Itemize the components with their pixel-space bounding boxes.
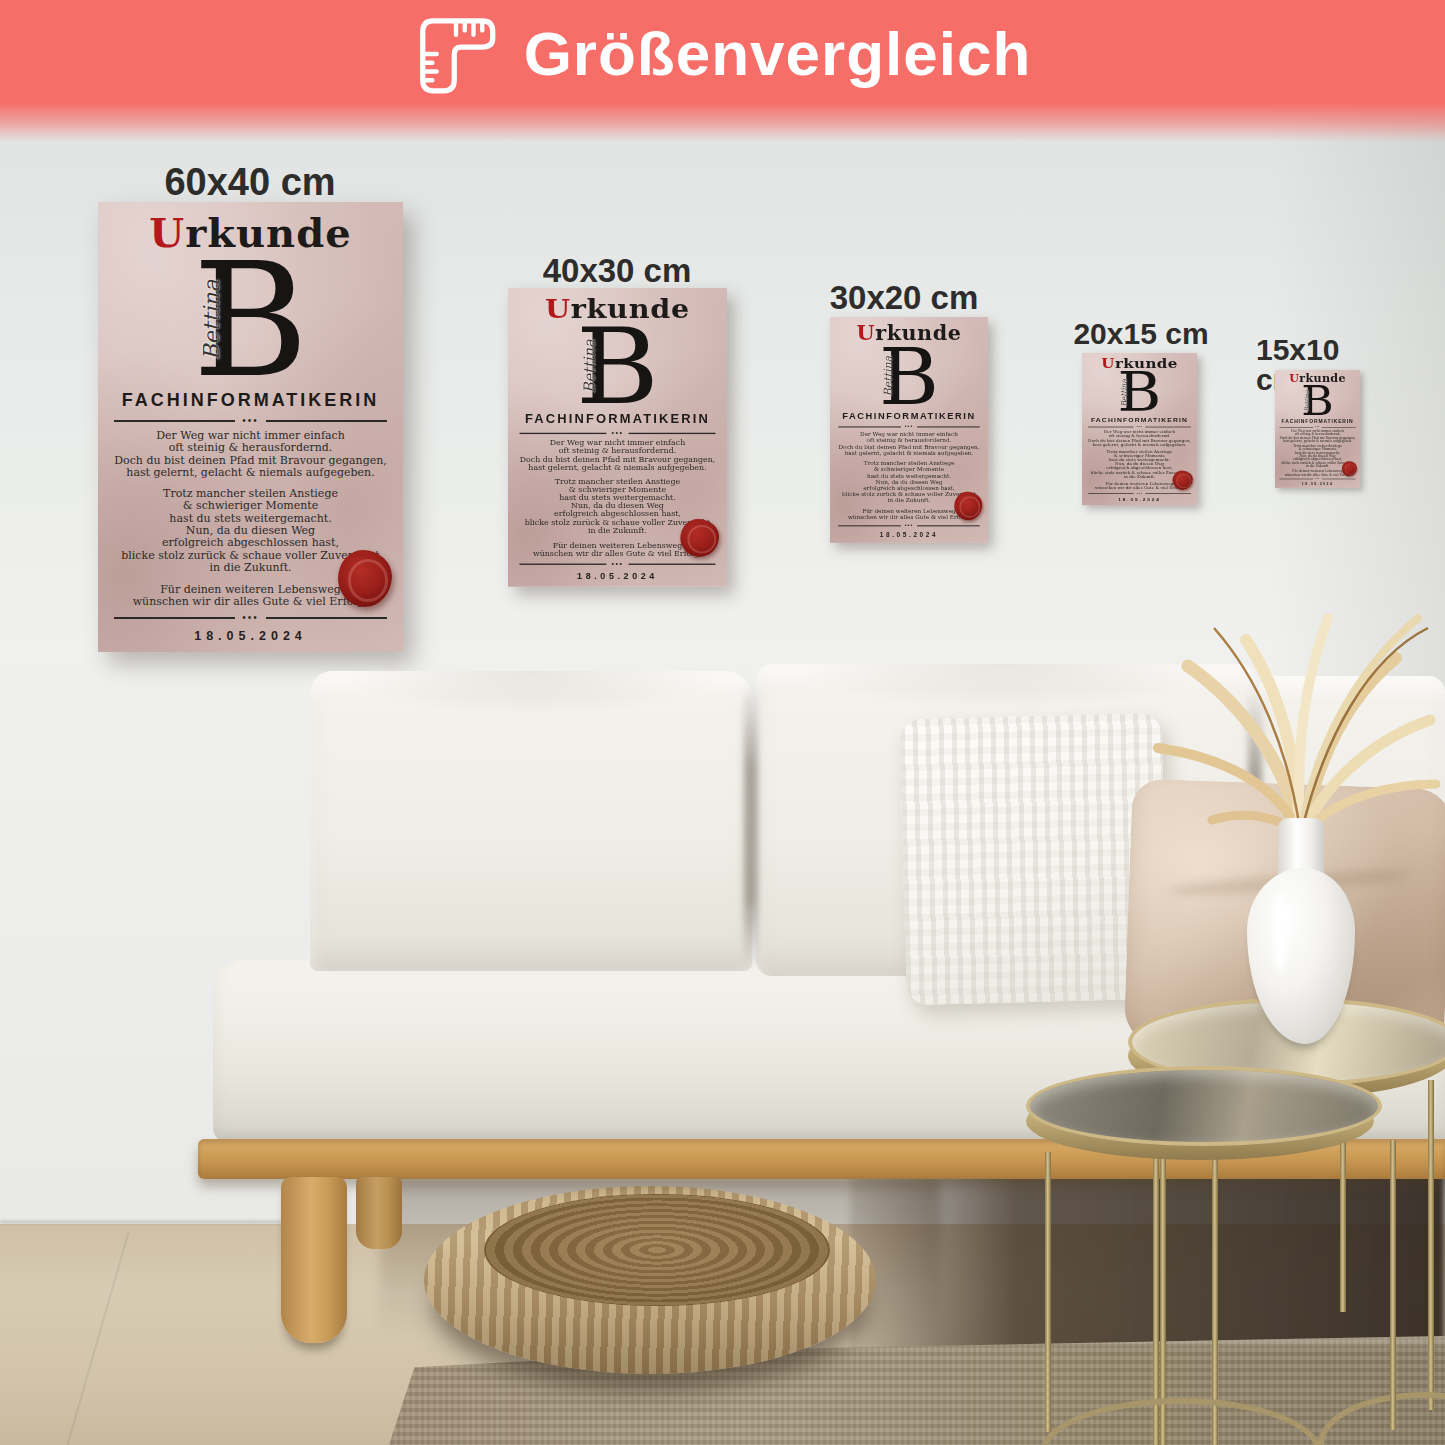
divider-top: •••: [838, 424, 979, 429]
monogram-letter: B: [1275, 384, 1360, 418]
divider-line: [266, 617, 387, 619]
divider-top: •••: [519, 430, 715, 437]
header-banner: Größenvergleich: [0, 0, 1445, 142]
monogram-name: Bettina: [882, 356, 895, 397]
small-table-leg: [1390, 1140, 1396, 1430]
divider-dots: •••: [1136, 492, 1142, 495]
poster-20x15: Urkunde B Bettina FACHINFORMATIKERIN •••…: [1082, 353, 1197, 505]
certificate: Urkunde B Bettina FACHINFORMATIKERIN •••…: [1275, 373, 1360, 488]
woven-pouf-top: [484, 1194, 830, 1306]
monogram-letter: B: [98, 256, 403, 386]
certificate-date: 18.05.2024: [830, 532, 988, 539]
certificate-paragraph-1: Der Weg war nicht immer einfach oft stei…: [1082, 430, 1197, 447]
divider-dots: •••: [612, 561, 624, 568]
divider-top: •••: [1088, 425, 1191, 428]
certificate: Urkunde B Bettina FACHINFORMATIKERIN •••…: [98, 212, 403, 652]
certificate-date: 18.05.2024: [1275, 482, 1360, 486]
divider-line: [266, 420, 387, 422]
certificate-paragraph-1: Der Weg war nicht immer einfach oft stei…: [98, 430, 403, 480]
skirting-line: [0, 1220, 300, 1224]
certificate: Urkunde B Bettina FACHINFORMATIKERIN •••…: [1082, 356, 1197, 505]
certificate: Urkunde B Bettina FACHINFORMATIKERIN •••…: [830, 322, 988, 543]
monogram-block: B Bettina: [1082, 371, 1197, 414]
certificate-title-initial: U: [1289, 372, 1299, 384]
ruler-icon: [414, 12, 498, 96]
divider-line: [917, 526, 980, 527]
certificate-title-initial: U: [857, 321, 876, 345]
divider-top: •••: [114, 416, 387, 426]
certificate-title-initial: U: [545, 293, 571, 324]
certificate-paragraph-1: Der Weg war nicht immer einfach oft stei…: [1275, 430, 1360, 443]
monogram-block: B Bettina: [508, 324, 727, 409]
poster-15x10: Urkunde B Bettina FACHINFORMATIKERIN •••…: [1275, 370, 1360, 488]
certificate-date: 18.05.2024: [1082, 497, 1197, 502]
poster-60x40: Urkunde B Bettina FACHINFORMATIKERIN •••…: [98, 202, 403, 652]
certificate: Urkunde B Bettina FACHINFORMATIKERIN •••…: [508, 295, 727, 587]
small-table-glass-top: [1026, 1066, 1382, 1146]
monogram-block: B Bettina: [1275, 384, 1360, 418]
divider-line: [1279, 479, 1313, 480]
monogram-name: Bettina: [1303, 390, 1310, 411]
divider-line: [1322, 479, 1356, 480]
divider-line: [838, 526, 901, 527]
certificate-title-initial: U: [1101, 355, 1115, 371]
divider-line: [1088, 427, 1134, 428]
couch-rear-leg: [356, 1177, 402, 1249]
woven-pouf: [424, 1186, 876, 1374]
certificate-paragraph-1: Der Weg war nicht immer einfach oft stei…: [508, 439, 727, 472]
divider-dots: •••: [1315, 426, 1320, 429]
couch-back-cushion-left: [310, 671, 752, 971]
divider-line: [917, 426, 980, 427]
divider-dots: •••: [242, 613, 259, 623]
monogram-letter: B: [1082, 371, 1197, 415]
monogram-name: Bettina: [580, 339, 598, 393]
divider-bottom: •••: [114, 613, 387, 623]
divider-line: [628, 433, 715, 434]
divider-bottom: •••: [1279, 478, 1355, 481]
certificate-date: 18.05.2024: [98, 629, 403, 643]
small-table-leg: [1045, 1152, 1051, 1432]
certificate-date: 18.05.2024: [508, 572, 727, 581]
monogram-block: B Bettina: [830, 344, 988, 408]
divider-dots: •••: [905, 524, 914, 529]
monogram-block: B Bettina: [98, 256, 403, 384]
divider-bottom: •••: [838, 524, 979, 529]
divider-top: •••: [1279, 426, 1355, 429]
divider-line: [519, 433, 606, 434]
couch-front-leg: [281, 1177, 347, 1343]
certificate-paragraph-1: Der Weg war nicht immer einfach oft stei…: [830, 431, 988, 456]
cushion-seam-shadow: [744, 682, 758, 970]
divider-line: [1145, 493, 1191, 494]
monogram-letter: B: [508, 324, 727, 410]
monogram-name: Bettina: [1120, 379, 1129, 406]
size-label-30x20: 30x20 cm: [830, 281, 979, 314]
monogram-name: Bettina: [198, 279, 223, 360]
divider-line: [1088, 493, 1134, 494]
big-table-leg: [1428, 1080, 1434, 1410]
divider-dots: •••: [1136, 425, 1142, 428]
monogram-letter: B: [830, 344, 988, 409]
divider-line: [838, 426, 901, 427]
divider-bottom: •••: [519, 561, 715, 568]
size-label-60x40: 60x40 cm: [164, 163, 335, 201]
divider-line: [519, 564, 606, 565]
divider-bottom: •••: [1088, 492, 1191, 495]
divider-line: [114, 617, 235, 619]
divider-line: [1279, 427, 1313, 428]
divider-dots: •••: [905, 424, 914, 429]
size-label-40x30: 40x30 cm: [543, 254, 692, 287]
size-label-20x15: 20x15 cm: [1073, 319, 1208, 349]
header-banner-content: Größenvergleich: [414, 12, 1032, 96]
poster-40x30: Urkunde B Bettina FACHINFORMATIKERIN •••…: [508, 288, 727, 587]
certificate-title-initial: U: [149, 209, 185, 256]
divider-dots: •••: [1315, 478, 1320, 481]
page-title: Größenvergleich: [524, 23, 1032, 85]
divider-dots: •••: [612, 430, 624, 437]
divider-line: [628, 564, 715, 565]
divider-dots: •••: [242, 416, 259, 426]
divider-line: [1145, 427, 1191, 428]
poster-30x20: Urkunde B Bettina FACHINFORMATIKERIN •••…: [830, 317, 988, 543]
divider-line: [1322, 427, 1356, 428]
divider-line: [114, 420, 235, 422]
dried-plant-leaves: [1128, 588, 1445, 848]
size-comparison-scene: 60x40 cm 40x30 cm 30x20 cm 20x15 cm 15x1…: [0, 0, 1445, 1445]
